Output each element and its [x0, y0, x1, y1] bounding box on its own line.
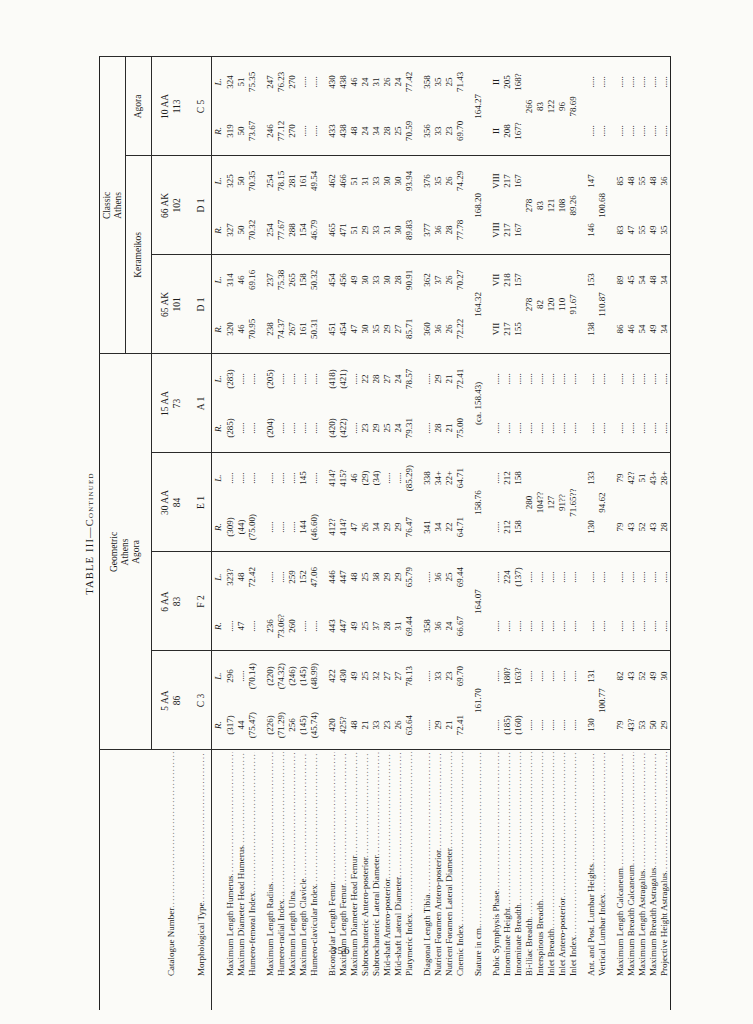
- value-cell-left: 46: [237, 255, 248, 305]
- row-label: Bi-iliac Breadth........................…: [525, 750, 536, 1010]
- value-cell-right: 77.67: [277, 205, 288, 255]
- value-cell-left: 46: [350, 57, 361, 107]
- gap-cell: [321, 57, 328, 156]
- value-cell-left: 22+: [445, 453, 456, 503]
- row-label-text: Maximum Length Ulna: [288, 891, 297, 976]
- value-cell-right: (420): [328, 404, 339, 454]
- value-cell-left: .....: [536, 651, 547, 701]
- value-cell-center: 83: [536, 156, 547, 255]
- value-cell-left: (70.14): [248, 651, 259, 701]
- value-cell-left: 42?: [627, 453, 638, 503]
- value-cell-left: 54: [638, 255, 649, 305]
- value-cell-left: 33: [434, 651, 445, 701]
- value-cell-left: 438: [339, 57, 350, 107]
- value-cell-right: 412?: [328, 503, 339, 553]
- value-cell-right: 256: [288, 701, 299, 751]
- value-cell-left: 422: [328, 651, 339, 701]
- value-cell-left: 51: [237, 57, 248, 107]
- dot-leader: ........................................…: [168, 753, 176, 908]
- value-cell-left: 36: [660, 156, 671, 206]
- value-cell-right: 72.22: [456, 304, 467, 354]
- value-cell-right: 69.44: [405, 602, 416, 652]
- value-cell-center: 91.67: [569, 255, 580, 354]
- value-cell-left: 34: [660, 255, 671, 305]
- value-cell-right: 51: [350, 205, 361, 255]
- value-cell-right: 33: [372, 205, 383, 255]
- value-cell-left: 75.38: [277, 255, 288, 305]
- value-cell-right: 63.64: [405, 701, 416, 751]
- value-cell-right: 29: [434, 701, 445, 751]
- value-cell-right: (285): [226, 404, 237, 454]
- dot-leader: ........................................…: [639, 753, 647, 871]
- side-label-right: R.: [212, 205, 226, 255]
- gap-cell: [467, 255, 474, 354]
- value-cell-right: 217: [503, 304, 514, 354]
- dot-leader: ........................................…: [384, 753, 392, 879]
- value-cell-right: .....: [587, 106, 598, 156]
- value-cell-left: .....: [547, 552, 558, 602]
- gap-stub: [580, 750, 587, 1010]
- value-cell-left: .....: [616, 57, 627, 107]
- value-cell-center: 158.76: [474, 453, 485, 552]
- value-cell-right: (422): [339, 404, 350, 454]
- value-cell-right: .....: [598, 106, 609, 156]
- value-cell-left: .....: [299, 57, 310, 107]
- value-cell-right: 23: [361, 404, 372, 454]
- row-label-text: Inlet Breadth: [547, 929, 556, 976]
- value-cell-right: 53: [638, 701, 649, 751]
- value-cell-left: .....: [587, 552, 598, 602]
- value-cell-right: .....: [627, 106, 638, 156]
- value-cell-right: 34: [434, 503, 445, 553]
- value-cell-left: .....: [547, 651, 558, 701]
- value-cell-left: 237: [266, 255, 277, 305]
- value-cell-right: 356: [423, 106, 434, 156]
- row-label: Interspinous Breadth....................…: [536, 750, 547, 1010]
- value-cell-left: .....: [237, 453, 248, 503]
- value-cell-right: .....: [248, 404, 259, 454]
- value-cell-right: .....: [492, 701, 503, 751]
- value-cell-left: 69.44: [456, 552, 467, 602]
- value-cell-left: .....: [569, 651, 580, 701]
- value-cell-right: .....: [514, 404, 525, 454]
- row-label: Maximum Length Femur....................…: [339, 750, 350, 1010]
- row-label: Ant. and Post. Lumbar Heights...........…: [587, 750, 598, 1010]
- side-label-left: L.: [212, 255, 226, 305]
- value-cell-right: 26: [445, 304, 456, 354]
- value-cell-right: 66.67: [456, 602, 467, 652]
- dot-leader: ........................................…: [599, 753, 607, 895]
- gap-cell: [416, 552, 423, 651]
- value-cell-left: 217: [503, 156, 514, 206]
- value-cell-left: .....: [598, 57, 609, 107]
- value-cell-right: .....: [616, 404, 627, 454]
- value-cell-right: 86: [616, 304, 627, 354]
- morphological-type: F 2: [192, 552, 212, 651]
- value-cell-right: 447: [339, 602, 350, 652]
- value-cell-right: .....: [649, 602, 660, 652]
- value-cell-left: .....: [569, 354, 580, 404]
- dot-leader: ........................................…: [249, 753, 257, 893]
- value-cell-left: 49.54: [310, 156, 321, 206]
- value-cell-left: .....: [492, 651, 503, 701]
- value-cell-right: 30: [361, 304, 372, 354]
- value-cell-right: 36: [434, 602, 445, 652]
- value-cell-left: .....: [503, 354, 514, 404]
- value-cell-left: 167: [514, 156, 525, 206]
- value-cell-right: 89.83: [405, 205, 416, 255]
- value-cell-left: 180?: [503, 651, 514, 701]
- value-cell-right: 238: [266, 304, 277, 354]
- row-label: Humero-radial Index.....................…: [277, 750, 288, 1010]
- value-cell-right: 29: [383, 503, 394, 553]
- value-cell-right: 377: [423, 205, 434, 255]
- row-label: Cnemic Index............................…: [456, 750, 467, 1010]
- row-label-text: Interspinous Breadth: [536, 901, 545, 976]
- value-cell-right: .....: [649, 404, 660, 454]
- gap-cell: [467, 552, 474, 651]
- value-cell-left: 247: [266, 57, 277, 107]
- value-cell-left: (34): [372, 453, 383, 503]
- value-cell-left: .....: [627, 57, 638, 107]
- gap-stub: [485, 750, 492, 1010]
- dot-leader: ........................................…: [340, 753, 348, 886]
- value-cell-left: 430: [328, 57, 339, 107]
- row-label: Maximum Breadth Astragalus..............…: [649, 750, 660, 1010]
- dot-leader: ........................................…: [504, 753, 512, 909]
- value-cell-right: 49: [649, 205, 660, 255]
- value-cell-right: .....: [558, 404, 569, 454]
- value-cell-right: 50: [237, 106, 248, 156]
- value-cell-center: 164.07: [474, 552, 485, 651]
- value-cell-right: 21: [445, 701, 456, 751]
- dot-leader: ........................................…: [548, 753, 556, 929]
- value-cell-right: 154: [299, 205, 310, 255]
- side-label-right: R.: [212, 602, 226, 652]
- value-cell-right: 49: [350, 602, 361, 652]
- row-label: Subtrochanteric Lateral Diameter........…: [372, 750, 383, 1010]
- row-label: Mid-shaft Antero-posterior..............…: [383, 750, 394, 1010]
- value-cell-left: 89: [616, 255, 627, 305]
- value-cell-left: 49: [350, 255, 361, 305]
- value-cell-right: .....: [660, 602, 671, 652]
- value-cell-left: 30: [383, 255, 394, 305]
- value-cell-left: .....: [288, 354, 299, 404]
- value-cell-left: II: [492, 57, 503, 107]
- value-cell-left: .....: [558, 552, 569, 602]
- value-cell-right: 327: [226, 205, 237, 255]
- gap-stub: [416, 750, 423, 1010]
- value-cell-left: 36: [434, 552, 445, 602]
- gap-cell: [580, 255, 587, 354]
- gap-cell: [580, 651, 587, 750]
- value-cell-left: 48: [627, 156, 638, 206]
- value-cell-left: 205: [503, 57, 514, 107]
- value-cell-left: 51: [638, 453, 649, 503]
- value-cell-right: 25: [361, 602, 372, 652]
- value-cell-right: .....: [536, 602, 547, 652]
- value-cell-right: .....: [638, 602, 649, 652]
- value-cell-left: 79: [616, 453, 627, 503]
- value-cell-left: 55: [638, 156, 649, 206]
- value-cell-right: 360: [423, 304, 434, 354]
- value-cell-left: (29): [361, 453, 372, 503]
- dot-leader: ........................................…: [267, 753, 275, 884]
- value-cell-left: 446: [328, 552, 339, 602]
- row-label: Maximum Length Clavicle.................…: [299, 750, 310, 1010]
- value-cell-left: .....: [423, 354, 434, 404]
- value-cell-right: 26: [361, 503, 372, 553]
- value-cell-left: 37: [434, 255, 445, 305]
- value-cell-right: .....: [423, 404, 434, 454]
- value-cell-left: 75.35: [248, 57, 259, 107]
- value-cell-right: .....: [536, 404, 547, 454]
- value-cell-right: 70.95: [248, 304, 259, 354]
- value-cell-right: 73.67: [248, 106, 259, 156]
- value-cell-right: 33: [372, 701, 383, 751]
- dot-leader: ........................................…: [661, 753, 669, 873]
- value-cell-left: .....: [237, 651, 248, 701]
- value-cell-right: (160): [514, 701, 525, 751]
- value-cell-center: 110: [558, 255, 569, 354]
- value-cell-right: .....: [237, 404, 248, 454]
- value-cell-right: 21: [361, 701, 372, 751]
- catalogue-number: 15 AA73: [152, 354, 192, 453]
- value-cell-left: 28: [394, 255, 405, 305]
- value-cell-left: 338: [423, 453, 434, 503]
- value-cell-left: 25: [445, 552, 456, 602]
- value-cell-left: .....: [492, 552, 503, 602]
- value-cell-right: 25: [383, 404, 394, 454]
- row-label-text: Morphological Type: [197, 903, 206, 976]
- value-cell-right: 34: [372, 503, 383, 553]
- morphological-type: C 3: [192, 651, 212, 750]
- row-label-text: Maximum Breadth Astragalus: [649, 868, 658, 976]
- value-cell-left: 24: [361, 57, 372, 107]
- value-cell-left: .....: [266, 552, 277, 602]
- value-cell-left: 259: [288, 552, 299, 602]
- row-label: Nutrient Foramen Lateral Diameter.......…: [445, 750, 456, 1010]
- row-label: Maximum Diameter Head Humerus...........…: [237, 750, 248, 1010]
- dot-leader: ........................................…: [373, 753, 381, 856]
- row-label-text: Maximum Length Astragalus: [638, 871, 647, 977]
- value-cell-left: .....: [492, 453, 503, 503]
- row-label-text: Maximum Length Calcaneum: [616, 868, 625, 976]
- anthropometric-table: GeometricAthensAgoraClassicAthensKeramei…: [99, 56, 671, 1010]
- value-cell-left: 131: [587, 651, 598, 701]
- value-cell-left: 49: [350, 651, 361, 701]
- value-cell-left: 24: [394, 57, 405, 107]
- value-cell-left: (145): [299, 651, 310, 701]
- value-cell-left: 30: [383, 156, 394, 206]
- value-cell-left: 414?: [328, 453, 339, 503]
- gap-cell: [485, 552, 492, 651]
- row-label-text: Diagonal Length Tibia: [423, 895, 432, 977]
- group-header-classic: ClassicAthens: [100, 57, 126, 354]
- row-label: Morphological Type......................…: [192, 750, 212, 1010]
- value-cell-right: .....: [288, 404, 299, 454]
- value-cell-right: .....: [638, 404, 649, 454]
- value-cell-center: (ca. 158.43): [474, 354, 485, 453]
- row-label-text: Humero-clavicular Index: [310, 885, 319, 976]
- value-cell-left: 147: [587, 156, 598, 206]
- value-cell-left: 32: [372, 651, 383, 701]
- value-cell-right: (145): [299, 701, 310, 751]
- value-cell-center: 100.77: [598, 651, 609, 750]
- gap-cell: [321, 453, 328, 552]
- value-cell-center: 122: [547, 57, 558, 156]
- value-cell-right: .....: [525, 701, 536, 751]
- value-cell-left: .....: [350, 354, 361, 404]
- gap-cell: [580, 552, 587, 651]
- value-cell-right: 47: [237, 602, 248, 652]
- row-label: Humero-femoral Index....................…: [248, 750, 259, 1010]
- value-cell-left: 163?: [514, 651, 525, 701]
- morphological-type: C 5: [192, 57, 212, 156]
- value-cell-left: 50: [237, 156, 248, 206]
- row-label-text: Bicondylar Length Femur: [328, 883, 337, 976]
- row-label: Innominate Height.......................…: [503, 750, 514, 1010]
- value-cell-right: .....: [660, 404, 671, 454]
- value-cell-left: 26: [445, 255, 456, 305]
- dot-leader: ........................................…: [617, 753, 625, 869]
- value-cell-left: .....: [310, 453, 321, 503]
- row-label-text: Subtrochanteric Antero-posterior: [361, 857, 370, 976]
- value-cell-right: 320: [226, 304, 237, 354]
- value-cell-right: 47: [627, 205, 638, 255]
- value-cell-right: 217: [503, 205, 514, 255]
- value-cell-left: 145: [299, 453, 310, 503]
- value-cell-left: 74.29: [456, 156, 467, 206]
- value-cell-right: 29: [361, 205, 372, 255]
- value-cell-left: 35: [434, 57, 445, 107]
- value-cell-left: .....: [514, 354, 525, 404]
- value-cell-right: .....: [299, 602, 310, 652]
- value-cell-right: .....: [299, 404, 310, 454]
- value-cell-right: .....: [627, 404, 638, 454]
- value-cell-left: .....: [248, 354, 259, 404]
- gap-cell: [467, 651, 474, 750]
- value-cell-left: .....: [288, 453, 299, 503]
- gap-cell: [485, 255, 492, 354]
- row-label: Bicondylar Length Femur.................…: [328, 750, 339, 1010]
- value-cell-right: .....: [558, 602, 569, 652]
- value-cell-right: 319: [226, 106, 237, 156]
- value-cell-right: 471: [339, 205, 350, 255]
- value-cell-left: 28+: [660, 453, 671, 503]
- gap-cell: [609, 255, 616, 354]
- value-cell-left: .....: [423, 552, 434, 602]
- rl-stub-blank: [212, 750, 226, 1010]
- value-cell-left: 161: [299, 156, 310, 206]
- value-cell-right: 79: [616, 701, 627, 751]
- value-cell-center: 108: [558, 156, 569, 255]
- value-cell-right: 425?: [339, 701, 350, 751]
- value-cell-right: 260: [288, 602, 299, 652]
- value-cell-left: 29: [434, 354, 445, 404]
- value-cell-left: 22: [361, 354, 372, 404]
- value-cell-right: 44: [237, 701, 248, 751]
- value-cell-left: 415?: [339, 453, 350, 503]
- value-cell-right: 75.00: [456, 404, 467, 454]
- value-cell-right: 236: [266, 602, 277, 652]
- value-cell-right: 35: [660, 205, 671, 255]
- value-cell-left: .....: [660, 354, 671, 404]
- value-cell-left: .....: [237, 354, 248, 404]
- row-label-text: Stature in cm.: [474, 926, 483, 976]
- value-cell-left: 430: [339, 651, 350, 701]
- value-cell-left: 30: [660, 651, 671, 701]
- value-cell-right: .....: [536, 701, 547, 751]
- value-cell-left: 31: [361, 156, 372, 206]
- gap-cell: [416, 255, 423, 354]
- row-label: Mid-shaft Lateral Diameter..............…: [394, 750, 405, 1010]
- value-cell-left: 93.94: [405, 156, 416, 206]
- row-label-text: Nutrient Foramen Lateral Diameter: [445, 848, 454, 976]
- row-label-text: Bi-iliac Breadth: [525, 918, 534, 976]
- value-cell-left: (246): [288, 651, 299, 701]
- value-cell-right: 47: [350, 503, 361, 553]
- value-cell-left: .....: [525, 552, 536, 602]
- value-cell-right: 43: [627, 503, 638, 553]
- value-cell-right: 48: [350, 701, 361, 751]
- dot-leader: ........................................…: [289, 753, 297, 892]
- value-cell-right: 76.47: [405, 503, 416, 553]
- dot-leader: ........................................…: [526, 753, 534, 919]
- row-label-text: Maximum Diameter Head Humerus: [237, 846, 246, 976]
- value-cell-right: VII: [492, 304, 503, 354]
- value-cell-right: .....: [598, 602, 609, 652]
- value-cell-right: 288: [288, 205, 299, 255]
- value-cell-right: 36: [434, 205, 445, 255]
- value-cell-right: 155: [514, 304, 525, 354]
- value-cell-left: 25: [445, 57, 456, 107]
- gap-stub: [467, 750, 474, 1010]
- catalogue-number: 10 AA113: [152, 57, 192, 156]
- value-cell-left: 48: [350, 552, 361, 602]
- value-cell-left: 224: [503, 552, 514, 602]
- row-label: Nutrient Foramen Antero-posterior.......…: [434, 750, 445, 1010]
- value-cell-right: 46.79: [310, 205, 321, 255]
- value-cell-right: 36: [434, 304, 445, 354]
- value-cell-left: 153: [587, 255, 598, 305]
- value-cell-right: .....: [569, 404, 580, 454]
- value-cell-right: .....: [266, 503, 277, 553]
- value-cell-left: .....: [394, 453, 405, 503]
- value-cell-right: (75.00): [248, 503, 259, 553]
- value-cell-right: 72.41: [456, 701, 467, 751]
- value-cell-right: 27: [394, 304, 405, 354]
- gap-cell: [321, 354, 328, 453]
- dot-leader: ........................................…: [475, 753, 483, 926]
- value-cell-left: 31: [372, 57, 383, 107]
- row-label-text: Inlet Antero-posterior: [558, 898, 567, 976]
- value-cell-right: 208: [503, 106, 514, 156]
- value-cell-left: .....: [638, 57, 649, 107]
- dot-leader: ........................................…: [395, 753, 403, 878]
- value-cell-left: (48.99): [310, 651, 321, 701]
- value-cell-left: 447: [339, 552, 350, 602]
- value-cell-right: 31: [383, 205, 394, 255]
- value-cell-right: 25: [394, 106, 405, 156]
- value-cell-right: 23: [445, 106, 456, 156]
- value-cell-left: .....: [649, 552, 660, 602]
- side-label-left: L.: [212, 57, 226, 107]
- value-cell-left: VII: [492, 255, 503, 305]
- value-cell-center: 78.69: [569, 57, 580, 156]
- gap-cell: [321, 255, 328, 354]
- value-cell-right: 30: [394, 205, 405, 255]
